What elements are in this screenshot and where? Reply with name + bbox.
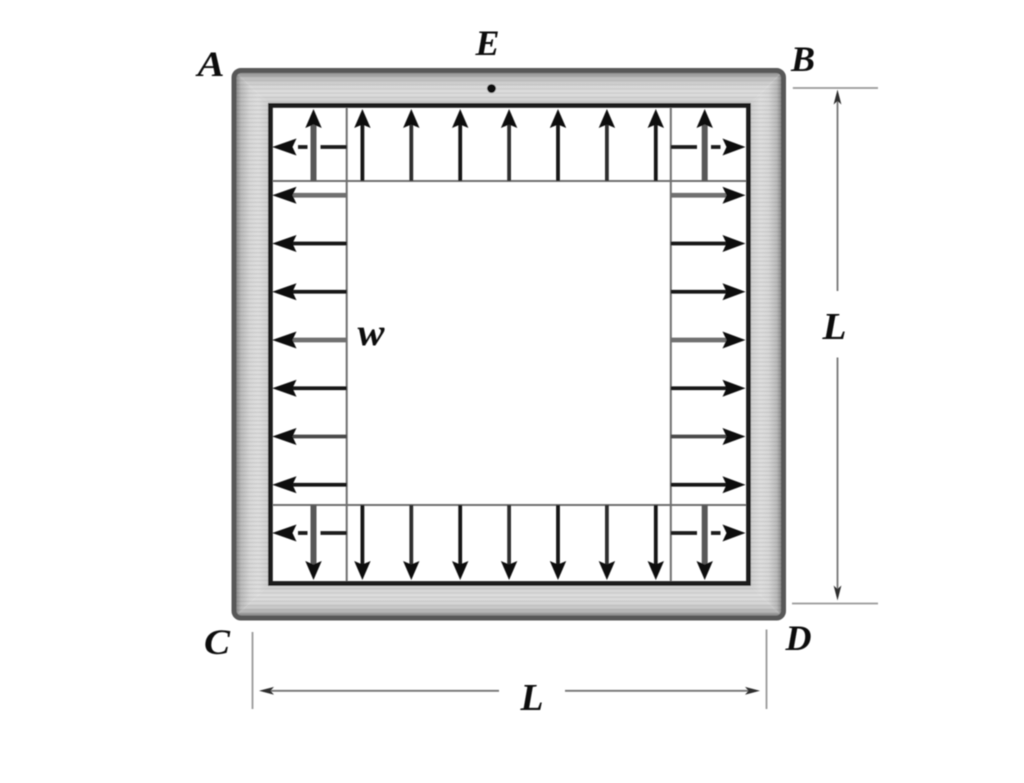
- svg-text:L: L: [520, 677, 544, 719]
- svg-text:A: A: [195, 44, 224, 84]
- svg-text:D: D: [785, 618, 812, 658]
- svg-text:w: w: [358, 312, 386, 354]
- svg-text:B: B: [790, 39, 815, 79]
- svg-text:L: L: [821, 306, 846, 348]
- svg-text:C: C: [204, 622, 231, 662]
- svg-text:E: E: [474, 23, 499, 63]
